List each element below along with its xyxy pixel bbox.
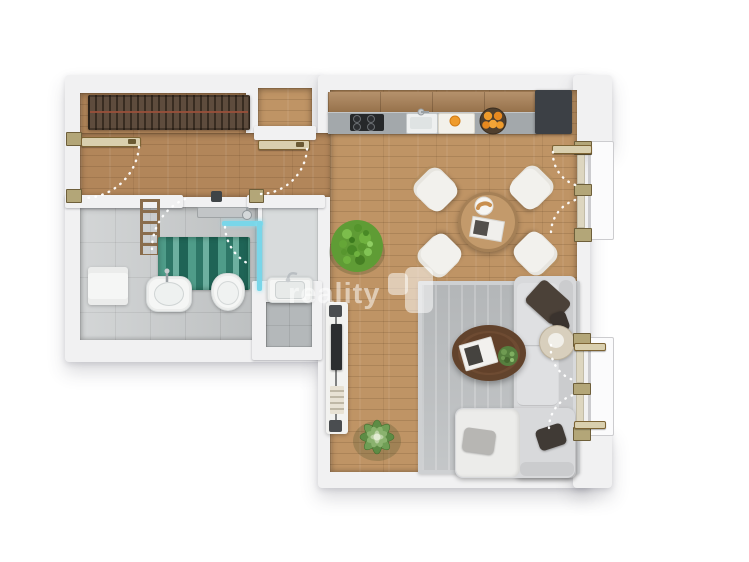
reality-logo-arm: [388, 273, 408, 295]
shower-head: [243, 207, 252, 220]
french-door-arc-4: [549, 394, 577, 428]
succulent-plant: [353, 420, 401, 461]
kitchen-faucet: [418, 109, 429, 115]
shower-door-arc: [225, 227, 247, 263]
coffee-table-plant: [498, 346, 518, 366]
washbasin-faucet: [165, 269, 170, 283]
entry-door-arc: [85, 147, 139, 198]
cooktop-burners: [354, 116, 375, 131]
french-door-arc-1: [553, 152, 579, 186]
reality-logo: [405, 267, 433, 313]
fruit-bowl: [480, 108, 506, 134]
hall-door-arc: [261, 149, 307, 194]
french-door-arc-3: [551, 345, 577, 381]
coffee-table-magazine: [459, 337, 498, 371]
watermark-text: reality: [288, 278, 380, 311]
french-door-arc-2: [551, 199, 579, 232]
orange-on-board: [450, 116, 460, 126]
bathroom-door-arc: [152, 199, 185, 251]
floor-plan-canvas: reality: [0, 0, 749, 562]
dining-plate: [475, 197, 493, 215]
bush-plant: [329, 220, 385, 275]
dining-magazine: [470, 216, 505, 241]
